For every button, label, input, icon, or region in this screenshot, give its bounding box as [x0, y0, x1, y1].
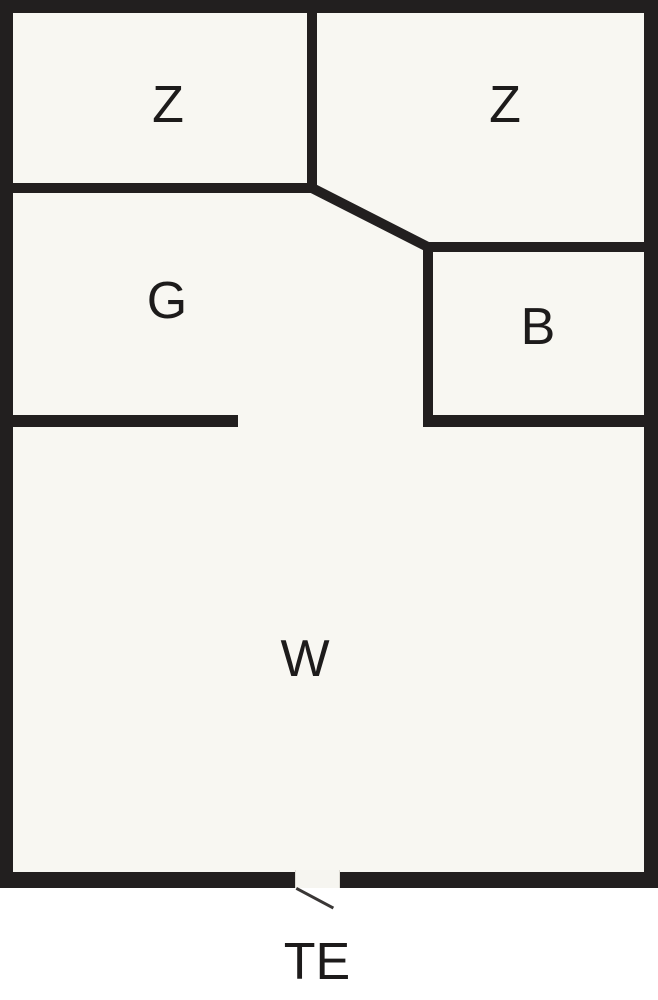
wall-b-left: [423, 242, 433, 427]
room-label-z1: Z: [152, 79, 184, 131]
wall-b-top: [423, 242, 658, 252]
floor-plan: Z Z G B W TE: [0, 0, 658, 1000]
wall-z-divider-vertical: [307, 13, 317, 193]
entrance-door-opening: [295, 870, 340, 888]
wall-b-bottom: [423, 415, 658, 427]
room-label-b: B: [521, 301, 556, 353]
outer-wall-top: [0, 0, 658, 13]
floor-area: [0, 0, 658, 888]
entrance-label: TE: [284, 936, 350, 988]
entrance-door-swing-line: [296, 887, 334, 909]
room-label-z2: Z: [489, 79, 521, 131]
wall-g-bottom-partial: [0, 415, 238, 427]
wall-z1-bottom: [13, 183, 317, 193]
outer-wall-left: [0, 0, 13, 888]
outer-wall-right: [644, 0, 658, 888]
room-label-g: G: [147, 275, 187, 327]
room-label-w: W: [280, 633, 329, 685]
